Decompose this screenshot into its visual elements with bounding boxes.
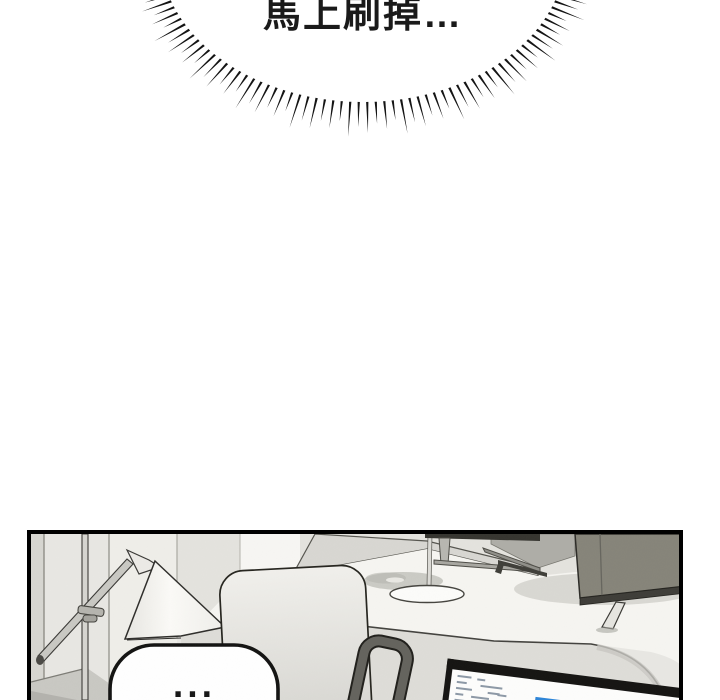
comic-panel: ... bbox=[27, 530, 683, 700]
burst-bubble-text: 馬上刷掉… bbox=[263, 0, 463, 38]
texture-overlay bbox=[31, 534, 679, 700]
comic-page: { "page": { "background": "#ffffff" }, "… bbox=[0, 0, 720, 700]
burst-speech-bubble: 馬上刷掉… bbox=[0, 0, 720, 160]
office-scene: ... bbox=[31, 534, 679, 700]
